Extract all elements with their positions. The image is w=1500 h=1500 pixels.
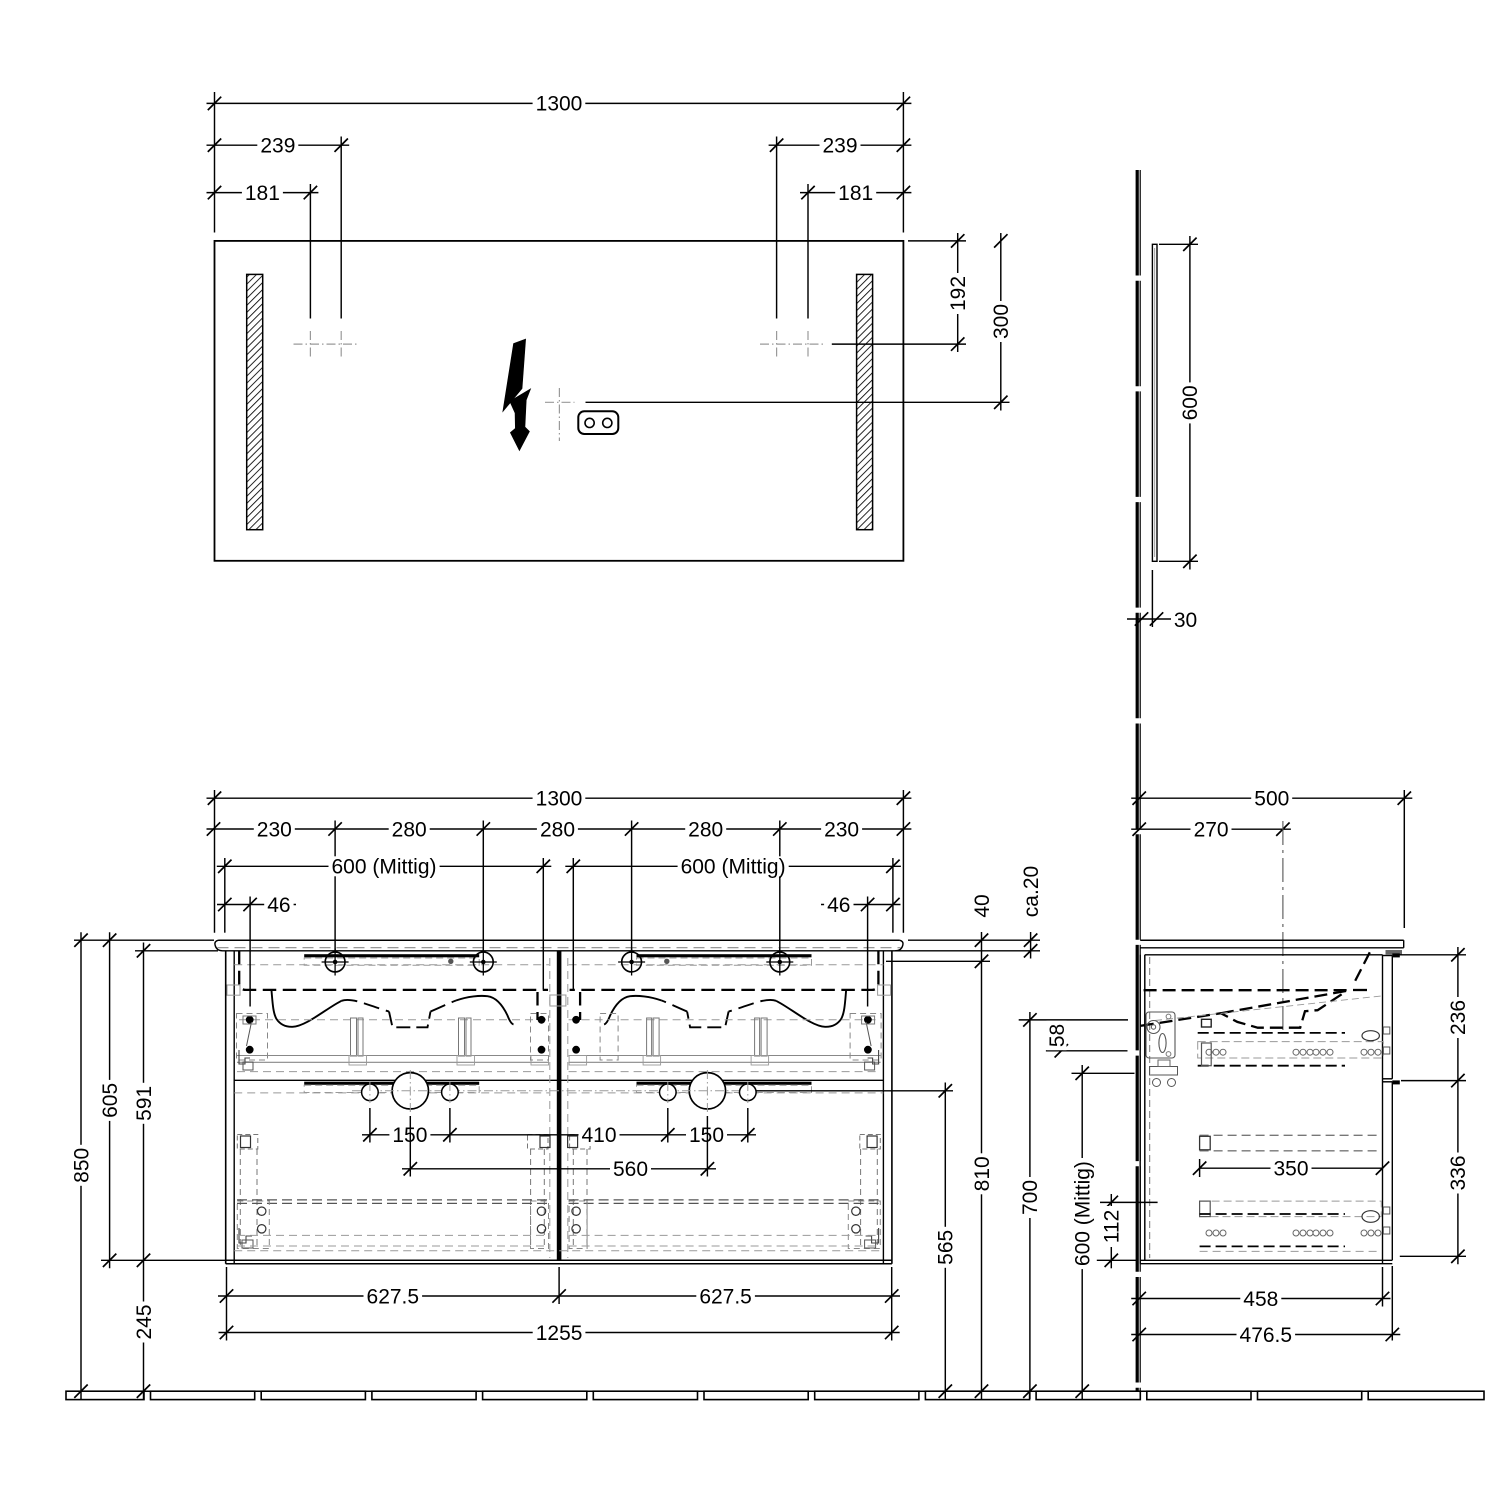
svg-text:150: 150 <box>689 1124 724 1147</box>
svg-text:336: 336 <box>1447 1155 1470 1190</box>
svg-text:600: 600 <box>1179 385 1202 420</box>
svg-text:239: 239 <box>260 135 295 158</box>
svg-text:245: 245 <box>133 1304 156 1339</box>
svg-text:458: 458 <box>1243 1288 1278 1311</box>
svg-text:600 (Mittig): 600 (Mittig) <box>1072 1161 1095 1266</box>
svg-text:300: 300 <box>990 304 1013 339</box>
svg-text:591: 591 <box>133 1086 156 1121</box>
svg-text:46: 46 <box>827 894 850 917</box>
svg-text:565: 565 <box>935 1230 958 1265</box>
svg-text:181: 181 <box>245 182 280 205</box>
svg-text:627.5: 627.5 <box>367 1285 420 1308</box>
svg-text:700: 700 <box>1019 1180 1042 1215</box>
svg-text:230: 230 <box>257 818 292 841</box>
svg-text:112: 112 <box>1101 1210 1124 1243</box>
svg-text:476.5: 476.5 <box>1240 1324 1293 1347</box>
svg-text:280: 280 <box>392 818 427 841</box>
svg-text:600 (Mittig): 600 (Mittig) <box>681 856 786 879</box>
svg-text:627.5: 627.5 <box>699 1285 752 1308</box>
svg-text:270: 270 <box>1194 819 1229 842</box>
svg-text:230: 230 <box>824 818 859 841</box>
svg-text:560: 560 <box>613 1158 648 1181</box>
svg-text:500: 500 <box>1254 788 1289 811</box>
svg-text:1255: 1255 <box>536 1322 583 1345</box>
svg-text:850: 850 <box>70 1148 93 1183</box>
svg-text:1300: 1300 <box>536 788 583 811</box>
svg-text:30: 30 <box>1174 609 1197 632</box>
svg-text:1300: 1300 <box>536 93 583 116</box>
svg-text:600 (Mittig): 600 (Mittig) <box>331 856 436 879</box>
svg-text:239: 239 <box>822 135 857 158</box>
svg-text:181: 181 <box>838 182 873 205</box>
svg-text:236: 236 <box>1447 1000 1470 1035</box>
svg-text:280: 280 <box>540 818 575 841</box>
svg-text:350: 350 <box>1273 1158 1308 1181</box>
svg-text:ca.20: ca.20 <box>1020 866 1043 917</box>
svg-text:410: 410 <box>581 1124 616 1147</box>
svg-text:192: 192 <box>947 276 970 311</box>
svg-text:810: 810 <box>971 1156 994 1191</box>
svg-text:605: 605 <box>99 1083 122 1118</box>
svg-text:46: 46 <box>267 894 290 917</box>
svg-text:40: 40 <box>971 894 994 917</box>
svg-text:58: 58 <box>1046 1024 1069 1047</box>
svg-text:280: 280 <box>688 818 723 841</box>
